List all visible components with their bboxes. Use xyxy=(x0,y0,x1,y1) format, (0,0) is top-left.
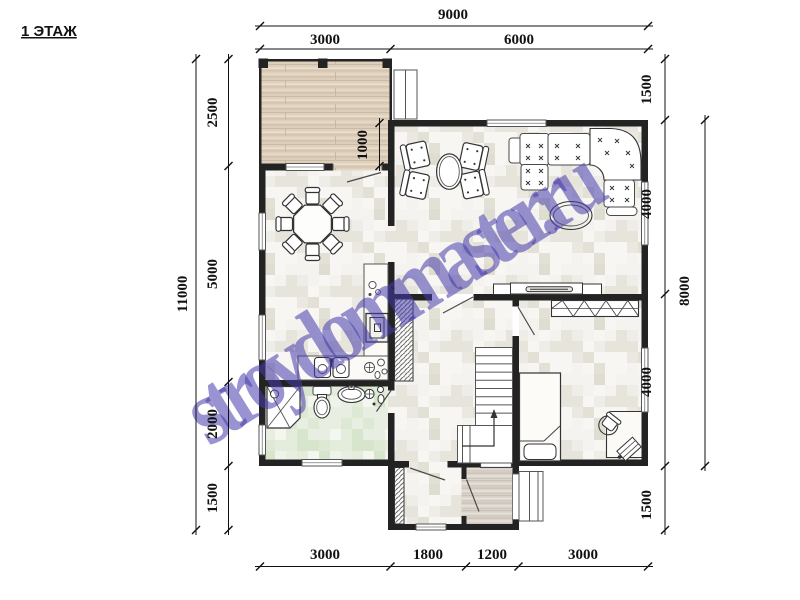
svg-text:1 ЭТАЖ: 1 ЭТАЖ xyxy=(21,23,77,40)
svg-text:6000: 6000 xyxy=(504,32,534,48)
svg-text:9000: 9000 xyxy=(438,7,468,23)
svg-text:1500: 1500 xyxy=(639,490,655,520)
svg-text:2500: 2500 xyxy=(205,98,221,128)
svg-text:1000: 1000 xyxy=(355,130,371,160)
svg-text:11000: 11000 xyxy=(175,276,191,313)
svg-text:3000: 3000 xyxy=(568,547,598,563)
svg-text:1200: 1200 xyxy=(477,547,507,563)
svg-text:3000: 3000 xyxy=(310,547,340,563)
svg-text:8000: 8000 xyxy=(677,276,693,306)
svg-text:1500: 1500 xyxy=(639,75,655,105)
svg-text:4000: 4000 xyxy=(639,367,655,397)
svg-text:4000: 4000 xyxy=(639,189,655,219)
svg-text:5000: 5000 xyxy=(205,259,221,289)
svg-text:2000: 2000 xyxy=(205,409,221,439)
svg-text:3000: 3000 xyxy=(310,32,340,48)
svg-text:1800: 1800 xyxy=(413,547,443,563)
svg-text:1500: 1500 xyxy=(205,483,221,513)
